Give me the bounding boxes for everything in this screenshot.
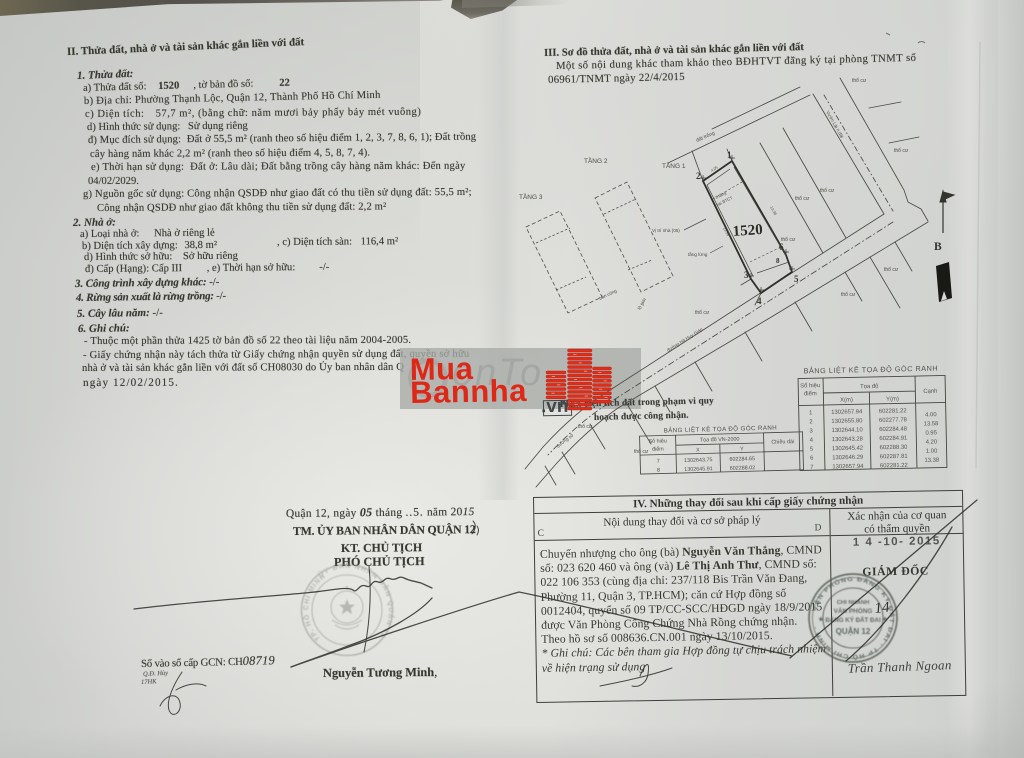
svg-text:5: 5 (794, 274, 799, 284)
svg-text:602288.02: 602288.02 (730, 465, 756, 472)
svg-text:X(m): X(m) (840, 397, 853, 403)
svg-text:602287.81: 602287.81 (880, 454, 908, 461)
svg-text:8: 8 (657, 468, 660, 474)
svg-text:TẦNG 2: TẦNG 2 (584, 155, 608, 165)
svg-text:1: 1 (809, 410, 812, 416)
svg-text:thổ cư: thổ cư (795, 195, 810, 202)
svg-text:thổ cư: thổ cư (781, 236, 796, 243)
svg-text:1302645.42: 1302645.42 (832, 446, 863, 453)
svg-text:đường Hà Huy Giáp: đường Hà Huy Giáp (666, 326, 704, 352)
svg-text:602281.22: 602281.22 (879, 408, 907, 415)
svg-text:1: 1 (727, 150, 732, 160)
svg-text:Y: Y (740, 446, 744, 452)
svg-text:1302655.80: 1302655.80 (831, 418, 863, 425)
svg-text:1302644.10: 1302644.10 (832, 427, 864, 434)
svg-text:1302646.29: 1302646.29 (832, 455, 863, 462)
svg-text:3: 3 (809, 428, 813, 434)
svg-text:thổ cư: thổ cư (695, 309, 710, 316)
svg-text:Y(m): Y(m) (886, 396, 899, 402)
svg-text:TP. HỒ CHÍ MINH: TP. HỒ CHÍ MINH (300, 573, 327, 642)
svg-text:thổ cư: thổ cư (884, 266, 899, 273)
svg-text:Chiều dài: Chiều dài (771, 439, 794, 446)
svg-text:điểm: điểm (804, 390, 817, 397)
svg-text:2: 2 (696, 171, 701, 181)
svg-text:4: 4 (810, 438, 814, 444)
svg-text:tầng lửng: tầng lửng (688, 251, 708, 257)
svg-text:6: 6 (810, 456, 814, 462)
svg-text:13.38: 13.38 (769, 206, 777, 216)
svg-text:602284.48: 602284.48 (879, 426, 908, 433)
svg-text:4: 4 (757, 296, 762, 306)
svg-text:1.00: 1.00 (926, 449, 938, 455)
svg-text:4.00: 4.00 (925, 412, 937, 418)
svg-text:1302657.94: 1302657.94 (831, 409, 863, 416)
svg-text:bản công: bản công (598, 288, 618, 301)
svg-text:TẦNG 3: TẦNG 3 (519, 191, 543, 201)
svg-text:Tọa độ: Tọa độ (860, 384, 879, 390)
svg-text:1520: 1520 (732, 222, 763, 240)
svg-text:602284.91: 602284.91 (879, 436, 907, 443)
svg-text:1302645.91: 1302645.91 (684, 466, 713, 473)
svg-text:Số hiệu: Số hiệu (800, 383, 820, 389)
svg-text:14: 14 (874, 599, 891, 617)
svg-text:0.95: 0.95 (925, 430, 937, 436)
svg-text:602284.65: 602284.65 (729, 456, 755, 463)
svg-text:BẢNG LIỆT KÊ TỌA ĐỘ GÓC RANH: BẢNG LIỆT KÊ TỌA ĐỘ GÓC RANH (804, 364, 939, 376)
svg-text:thổ cư: thổ cư (578, 423, 593, 430)
svg-text:Cạnh: Cạnh (923, 389, 937, 395)
svg-text:thổ cư: thổ cư (894, 147, 909, 154)
svg-text:Tọa độ VN-2000: Tọa độ VN-2000 (700, 437, 740, 444)
svg-text:TẦNG 1: TẦNG 1 (662, 160, 686, 170)
svg-text:thổ cư: thổ cư (841, 291, 856, 298)
svg-text:Vị trí nhà (05): Vị trí nhà (05) (652, 228, 680, 233)
svg-text:lộ giới: lộ giới (637, 297, 648, 310)
svg-text:3: 3 (744, 270, 749, 280)
svg-text:X: X (696, 448, 700, 454)
svg-text:điểm: điểm (652, 445, 664, 452)
svg-text:1302657.94: 1302657.94 (832, 464, 864, 471)
svg-text:Số hiệu: Số hiệu (648, 438, 666, 444)
svg-text:đường số: đường số (556, 432, 575, 448)
svg-text:B: B (934, 241, 942, 253)
svg-text:8: 8 (776, 257, 780, 265)
svg-text:4.20: 4.20 (926, 439, 938, 445)
svg-text:1302643.75: 1302643.75 (684, 457, 713, 464)
svg-text:★: ★ (818, 616, 824, 623)
svg-text:5: 5 (810, 447, 814, 453)
svg-text:7: 7 (810, 465, 813, 471)
svg-text:13.58: 13.58 (924, 421, 940, 427)
svg-text:1302643.28: 1302643.28 (832, 436, 864, 443)
svg-text:2: 2 (809, 419, 812, 425)
svg-text:Vườn Lài n.dài: Vườn Lài n.dài (825, 110, 845, 139)
svg-text:QUẬN 12: QUẬN 12 (836, 627, 871, 636)
svg-text:602281.22: 602281.22 (880, 463, 908, 470)
svg-text:thổ cư: thổ cư (852, 77, 867, 84)
svg-text:ỦY BAN NHÂN DÂN QUẬN 12: ỦY BAN NHÂN DÂN QUẬN 12 (316, 563, 396, 640)
svg-text:VĂN PHÒNG: VĂN PHÒNG (834, 606, 873, 615)
svg-text:602277.78: 602277.78 (879, 417, 908, 424)
svg-text:602288.30: 602288.30 (880, 445, 909, 452)
svg-text:13.38: 13.38 (924, 458, 940, 464)
svg-text:thổ cư: thổ cư (634, 448, 649, 455)
svg-text:6: 6 (779, 242, 784, 252)
svg-text:thổ cư: thổ cư (820, 187, 835, 194)
svg-text:7: 7 (657, 459, 660, 465)
